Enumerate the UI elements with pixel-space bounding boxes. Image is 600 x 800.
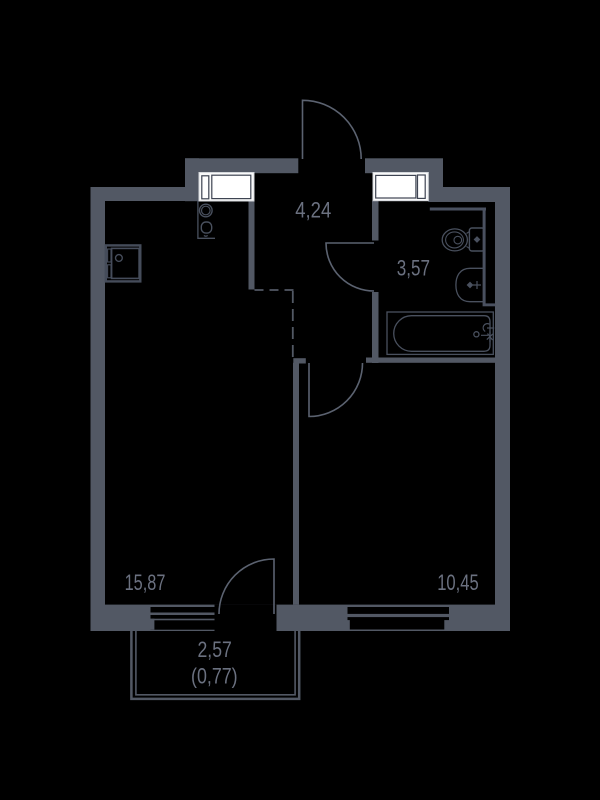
svg-text:(0,77): (0,77): [191, 664, 238, 689]
svg-text:15,87: 15,87: [125, 570, 166, 595]
svg-text:4,24: 4,24: [295, 198, 331, 223]
svg-text:3,57: 3,57: [397, 256, 430, 281]
svg-text:10,45: 10,45: [437, 570, 479, 595]
svg-text:2,57: 2,57: [198, 637, 232, 662]
